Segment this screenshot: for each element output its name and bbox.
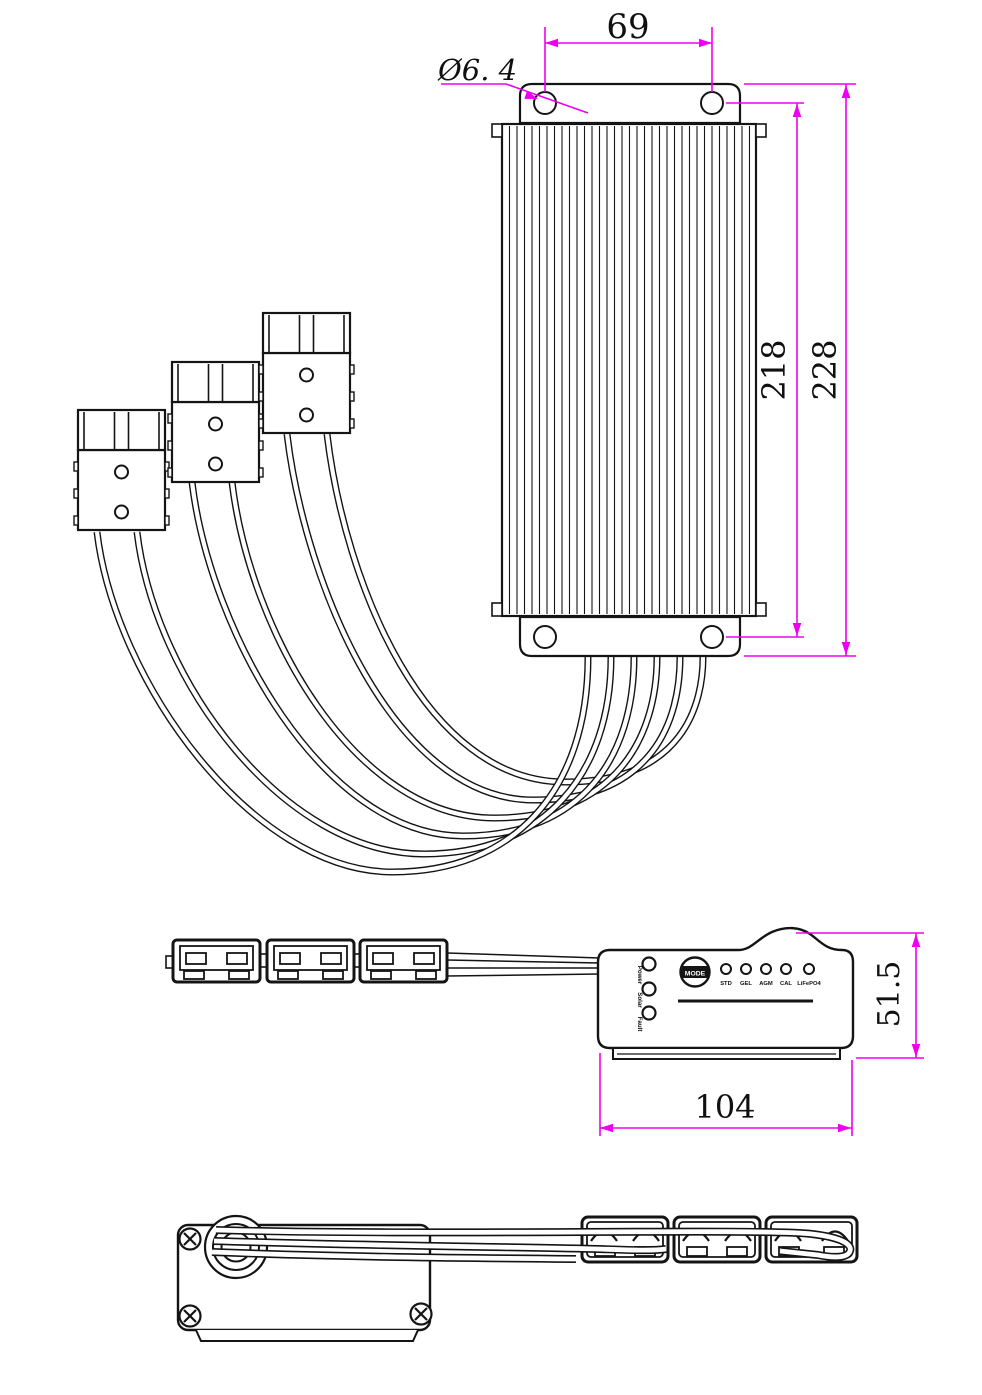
mounting-hole bbox=[534, 626, 556, 648]
side-connector-window bbox=[280, 953, 300, 964]
technical-drawing-page: Power Solar Fault MODE STD GEL AGM CAL L… bbox=[0, 0, 982, 1395]
connector-rivet bbox=[209, 418, 222, 431]
status-led-power bbox=[643, 958, 656, 971]
top-view bbox=[74, 84, 766, 872]
connector-cap bbox=[263, 313, 350, 353]
connector-side-tab bbox=[168, 468, 172, 477]
connector-side-tab bbox=[165, 516, 169, 525]
dim-hole-diameter-label: Ø6. 4 bbox=[437, 53, 517, 87]
connector-side-tab bbox=[350, 365, 354, 374]
status-led-label: Fault bbox=[636, 1017, 643, 1032]
arrowhead-icon bbox=[545, 39, 558, 48]
mode-led-lifepo4 bbox=[804, 964, 814, 974]
side-tab bbox=[492, 603, 502, 616]
side-connector-window bbox=[321, 953, 341, 964]
arrowhead-icon bbox=[793, 104, 802, 117]
dim-hole-spacing-label: 69 bbox=[606, 7, 649, 47]
connector-side-tab bbox=[259, 419, 263, 428]
arrowhead-icon bbox=[838, 1124, 851, 1133]
wire bbox=[447, 974, 600, 976]
connector-side-tab bbox=[74, 462, 78, 471]
connector-side-tab bbox=[168, 414, 172, 423]
side-view-connectors bbox=[166, 940, 447, 982]
connector-side-tab bbox=[74, 489, 78, 498]
mode-led-label: CAL bbox=[780, 981, 792, 987]
end-housing-lip bbox=[196, 1330, 418, 1341]
connector-cap bbox=[78, 410, 165, 450]
dim-body-height-label: 218 bbox=[755, 339, 793, 400]
dim-side-width-label: 104 bbox=[694, 1088, 755, 1126]
arrowhead-icon bbox=[600, 1124, 613, 1133]
mode-led-label: LiFePO4 bbox=[797, 981, 821, 987]
mode-button-label: MODE bbox=[685, 971, 706, 978]
connector-side-tab bbox=[259, 468, 263, 477]
status-led-label: Power bbox=[636, 966, 643, 985]
side-connector-tab bbox=[323, 971, 343, 979]
arrowhead-icon bbox=[793, 623, 802, 636]
wire bbox=[447, 960, 600, 963]
status-led-label: Solar bbox=[636, 992, 643, 1008]
connector-rivet bbox=[300, 369, 313, 382]
side-tab bbox=[756, 603, 766, 616]
front-connectors bbox=[74, 313, 354, 530]
connector-rivet bbox=[115, 466, 128, 479]
connector-rivet bbox=[300, 409, 313, 422]
arrowhead-icon bbox=[699, 39, 712, 48]
charger-drawing-canvas: Power Solar Fault MODE STD GEL AGM CAL L… bbox=[0, 0, 982, 1395]
side-connector-window bbox=[227, 953, 247, 964]
connector-side-tab bbox=[350, 419, 354, 428]
connector-side-tab bbox=[350, 392, 354, 401]
side-tab bbox=[492, 124, 502, 137]
side-connector-tab bbox=[229, 971, 249, 979]
mode-led-label: AGM bbox=[759, 981, 773, 987]
mode-led-gel bbox=[741, 964, 751, 974]
dim-side-height-label: 51.5 bbox=[872, 961, 907, 1028]
connector-side-tab bbox=[165, 489, 169, 498]
connector-side-tab bbox=[74, 516, 78, 525]
side-connector-tab bbox=[371, 971, 391, 979]
connector-cap bbox=[172, 362, 259, 402]
mode-led-cal bbox=[781, 964, 791, 974]
side-connector-tab bbox=[278, 971, 298, 979]
mounting-hole bbox=[701, 626, 723, 648]
side-connector-tab bbox=[416, 971, 436, 979]
dim-overall-height-label: 228 bbox=[806, 339, 844, 400]
connector-side-tab bbox=[259, 441, 263, 450]
status-led-fault bbox=[643, 1007, 656, 1020]
connector-rivet bbox=[209, 458, 222, 471]
arrowhead-icon bbox=[842, 642, 851, 655]
mode-led-label: STD bbox=[720, 981, 732, 987]
mounting-hole bbox=[701, 92, 723, 114]
end-view bbox=[178, 1216, 857, 1341]
connector-side-tab bbox=[259, 392, 263, 401]
side-connector-tab bbox=[184, 971, 204, 979]
connector-side-tab bbox=[168, 441, 172, 450]
arrowhead-icon bbox=[912, 1044, 921, 1057]
side-tab bbox=[756, 124, 766, 137]
side-connector-window bbox=[414, 953, 434, 964]
mode-led-std bbox=[721, 964, 731, 974]
side-connector-window bbox=[373, 953, 393, 964]
status-led-solar bbox=[643, 983, 656, 996]
wire bbox=[447, 953, 600, 958]
arrowhead-icon bbox=[842, 85, 851, 98]
side-view: Power Solar Fault MODE STD GEL AGM CAL L… bbox=[166, 928, 853, 1059]
mode-led-agm bbox=[761, 964, 771, 974]
side-connector-window bbox=[186, 953, 206, 964]
mode-led-label: GEL bbox=[740, 981, 752, 987]
arrowhead-icon bbox=[912, 934, 921, 947]
connector-rivet bbox=[115, 506, 128, 519]
connector-side-tab bbox=[259, 365, 263, 374]
